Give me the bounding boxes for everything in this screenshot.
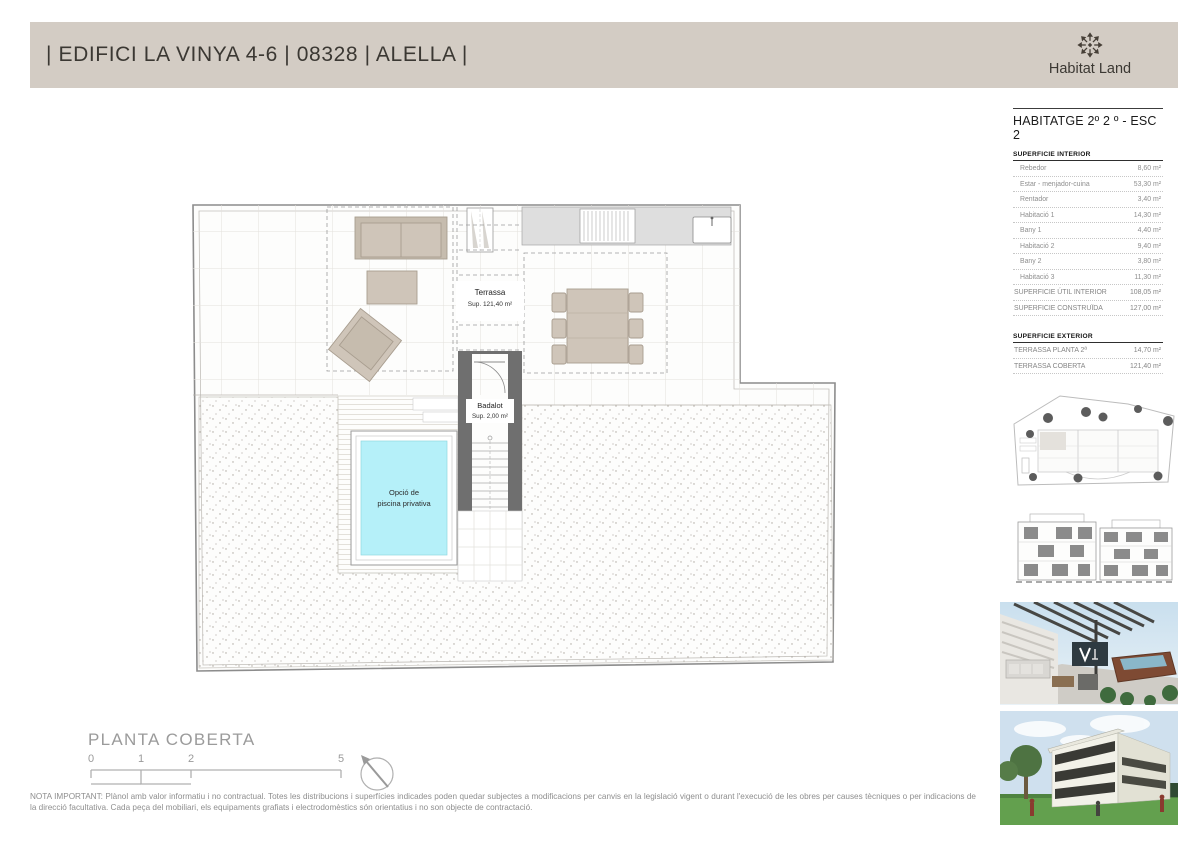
badalot-name: Badalot	[477, 401, 503, 410]
area-row: Habitació 114,30 m²	[1013, 208, 1163, 224]
area-row-value: 127,00 m²	[1130, 305, 1161, 312]
header-bar: | EDIFICI LA VINYA 4-6 | 08328 | ALELLA …	[30, 22, 1178, 88]
area-row-label: TERRASSA PLANTA 2ª	[1014, 347, 1087, 354]
area-row-value: 108,05 m²	[1130, 289, 1161, 296]
area-row-label: Rebedor	[1020, 165, 1046, 172]
area-row-label: TERRASSA COBERTA	[1014, 363, 1085, 370]
outdoor-kitchen-counter	[522, 207, 731, 245]
floor-plan: Opció de piscina privativa	[185, 195, 845, 695]
elevation-thumbnail	[1008, 498, 1180, 601]
area-row-label: SUPERFICIE ÚTIL INTERIOR	[1014, 289, 1107, 296]
habitat-land-logo-icon	[1075, 30, 1105, 60]
terrassa-sup: Sup. 121,40 m²	[468, 301, 513, 308]
area-row-label: SUPERFICIE CONSTRUÏDA	[1014, 305, 1103, 312]
area-row-value: 11,30 m²	[1134, 274, 1161, 281]
pool-label-line2: piscina privativa	[377, 499, 431, 508]
surface-table: HABITATGE 2º 2 º - ESC 2 SUPERFICIE INTE…	[1013, 108, 1163, 374]
area-row-value: 4,40 m²	[1138, 227, 1161, 234]
habitat-land-logo-text: Habitat Land	[1032, 61, 1148, 77]
area-row-value: 14,70 m²	[1134, 347, 1161, 354]
unit-title: HABITATGE 2º 2 º - ESC 2	[1013, 112, 1163, 147]
area-row-value: 3,80 m²	[1138, 258, 1161, 265]
scale-tick-1: 1	[138, 753, 144, 765]
area-row-total: SUPERFICIE CONSTRUÏDA127,00 m²	[1013, 301, 1163, 317]
area-row-value: 8,60 m²	[1138, 165, 1161, 172]
area-row: Rebedor8,60 m²	[1013, 161, 1163, 177]
area-row: Habitació 29,40 m²	[1013, 239, 1163, 255]
area-row-label: Habitació 3	[1020, 274, 1054, 281]
site-plan-thumbnail	[1008, 390, 1180, 495]
habitat-land-logo: Habitat Land	[1032, 28, 1148, 77]
scale-tick-0: 0	[88, 753, 94, 765]
roof-vent	[467, 208, 493, 252]
area-row-total: SUPERFICIE ÚTIL INTERIOR108,05 m²	[1013, 285, 1163, 301]
area-row-label: Habitació 2	[1020, 243, 1054, 250]
legal-note: NOTA IMPORTANT: Plànol amb valor informa…	[30, 791, 976, 814]
terrassa-label: Terrassa Sup. 121,40 m²	[456, 281, 524, 321]
area-row-label: Bany 1	[1020, 227, 1041, 234]
north-arrow-icon	[361, 755, 393, 790]
area-row: TERRASSA COBERTA121,40 m²	[1013, 359, 1163, 375]
area-row-label: Estar - menjador-cuina	[1020, 181, 1090, 188]
area-row: TERRASSA PLANTA 2ª14,70 m²	[1013, 343, 1163, 359]
area-row: Rentador3,40 m²	[1013, 192, 1163, 208]
area-row-value: 53,30 m²	[1134, 181, 1161, 188]
pool: Opció de piscina privativa	[351, 431, 457, 565]
building-title: | EDIFICI LA VINYA 4-6 | 08328 | ALELLA …	[46, 43, 468, 67]
area-row-value: 121,40 m²	[1130, 363, 1161, 370]
badalot-landing	[458, 511, 522, 581]
area-row: Bany 14,40 m²	[1013, 223, 1163, 239]
area-row-label: Bany 2	[1020, 258, 1041, 265]
area-row-value: 9,40 m²	[1138, 243, 1161, 250]
badalot-sup: Sup. 2,00 m²	[472, 413, 508, 420]
area-row: Bany 23,80 m²	[1013, 254, 1163, 270]
area-row-label: Habitació 1	[1020, 212, 1054, 219]
terrassa-name: Terrassa	[475, 288, 506, 297]
plan-title: PLANTA COBERTA	[88, 730, 255, 750]
scale-tick-5: 5	[338, 753, 344, 765]
area-row-label: Rentador	[1020, 196, 1048, 203]
exterior-section-heading: SUPERFICIE EXTERIOR	[1013, 329, 1163, 343]
terrace-render-thumbnail	[1000, 602, 1178, 710]
area-row: Estar - menjador-cuina53,30 m²	[1013, 177, 1163, 193]
interior-section-heading: SUPERFICIE INTERIOR	[1013, 147, 1163, 161]
area-row-value: 14,30 m²	[1134, 212, 1161, 219]
area-row: Habitació 311,30 m²	[1013, 270, 1163, 286]
scale-tick-2: 2	[188, 753, 194, 765]
building-render-thumbnail	[1000, 711, 1178, 830]
dining-table	[567, 289, 628, 363]
area-row-value: 3,40 m²	[1138, 196, 1161, 203]
pool-label-line1: Opció de	[389, 488, 419, 497]
